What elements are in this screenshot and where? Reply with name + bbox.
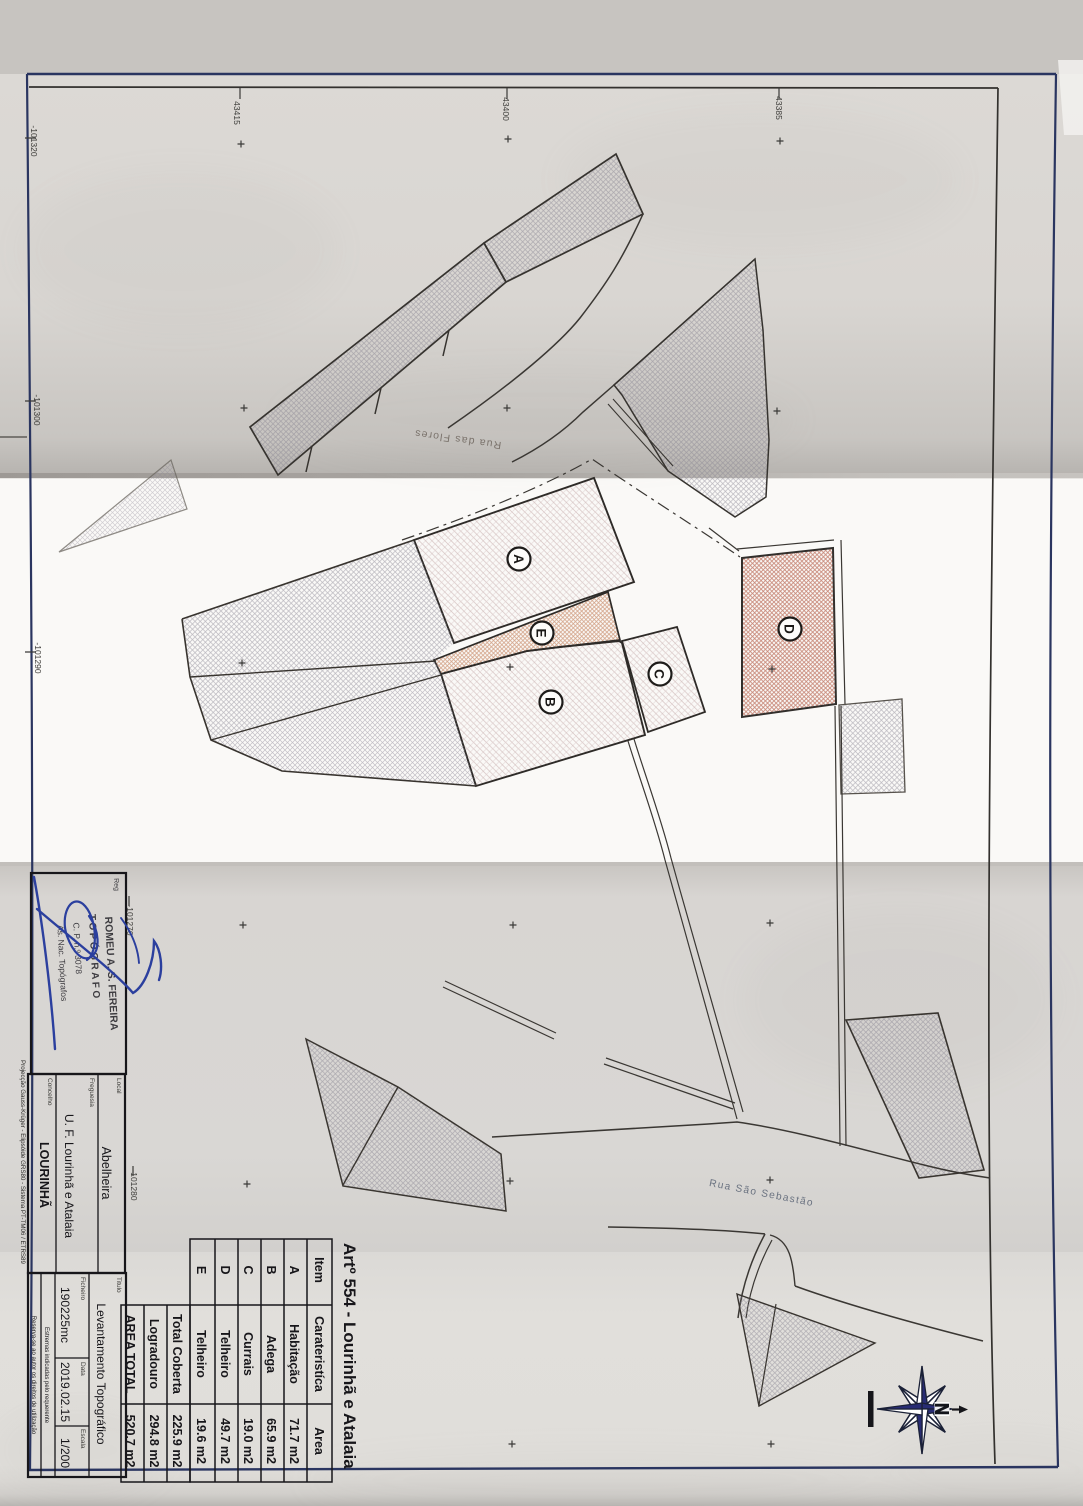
svg-text:C: C — [241, 1265, 255, 1274]
svg-text:-101290: -101290 — [33, 642, 43, 673]
svg-text:A: A — [511, 554, 526, 564]
svg-text:Total Coberta: Total Coberta — [170, 1314, 184, 1395]
svg-text:Item: Item — [312, 1257, 326, 1283]
svg-text:Currais: Currais — [241, 1332, 255, 1376]
svg-text:E: E — [534, 628, 549, 637]
svg-text:Concelho: Concelho — [46, 1078, 53, 1106]
svg-text:Logradouro: Logradouro — [147, 1319, 161, 1389]
svg-text:Area: Area — [312, 1427, 326, 1456]
svg-text:Reserva-se ao autor os direito: Reserva-se ao autor os direitos de utili… — [30, 1316, 36, 1435]
svg-text:B: B — [264, 1265, 278, 1274]
svg-text:Estremas indicadas pelo requer: Estremas indicadas pelo requerente — [43, 1327, 49, 1424]
svg-text:U. F. Lourinhã e Atalaia: U. F. Lourinhã e Atalaia — [62, 1114, 76, 1238]
svg-text:Abelheira: Abelheira — [99, 1147, 113, 1200]
svg-text:-101320: -101320 — [29, 125, 39, 156]
svg-text:-101300: -101300 — [32, 394, 42, 425]
svg-text:1/200: 1/200 — [58, 1438, 72, 1468]
svg-text:Artº 554 - Lourinhã e Atalaia: Artº 554 - Lourinhã e Atalaia — [340, 1243, 359, 1469]
svg-text:294.8 m2: 294.8 m2 — [147, 1415, 161, 1468]
svg-text:B: B — [543, 697, 558, 707]
svg-text:Local: Local — [115, 1078, 122, 1094]
svg-text:Telheiro: Telheiro — [218, 1330, 232, 1378]
svg-text:Escala: Escala — [79, 1429, 86, 1449]
svg-text:Telheiro: Telheiro — [194, 1330, 208, 1378]
svg-text:Projecção Gauss-Krüger - Elips: Projecção Gauss-Krüger - Elipsóide GRS80… — [19, 1060, 26, 1264]
svg-text:19.0 m2: 19.0 m2 — [241, 1418, 255, 1464]
svg-text:D: D — [782, 624, 797, 634]
svg-text:Ficheiro: Ficheiro — [79, 1277, 86, 1301]
svg-text:E: E — [194, 1266, 208, 1274]
svg-text:43400: 43400 — [501, 97, 511, 121]
svg-text:65.9 m2: 65.9 m2 — [264, 1418, 278, 1464]
svg-text:A: A — [287, 1265, 301, 1274]
svg-text:Titulo: Titulo — [115, 1277, 122, 1293]
svg-text:2019.02.15: 2019.02.15 — [58, 1362, 72, 1422]
svg-text:43415: 43415 — [232, 101, 242, 125]
svg-text:Carateristíca: Carateristíca — [312, 1316, 326, 1393]
svg-text:43385: 43385 — [774, 96, 784, 120]
svg-text:Habitação: Habitação — [287, 1324, 301, 1384]
svg-text:D: D — [218, 1265, 232, 1274]
svg-text:-101280: -101280 — [129, 1169, 139, 1200]
svg-text:49.7 m2: 49.7 m2 — [218, 1418, 232, 1464]
svg-text:19.6 m2: 19.6 m2 — [194, 1418, 208, 1464]
svg-text:Adega: Adega — [264, 1335, 278, 1374]
svg-text:Reg: Reg — [112, 878, 120, 891]
svg-text:Data: Data — [79, 1362, 86, 1376]
svg-text:C: C — [652, 669, 667, 679]
svg-text:225.9 m2: 225.9 m2 — [170, 1415, 184, 1468]
svg-text:LOURINHÃ: LOURINHÃ — [37, 1142, 52, 1208]
svg-text:Freguesia: Freguesia — [88, 1078, 95, 1107]
svg-text:71.7 m2: 71.7 m2 — [287, 1418, 301, 1464]
svg-text:190225mc: 190225mc — [58, 1287, 72, 1343]
svg-text:Levantamento Topográfico: Levantamento Topográfico — [94, 1303, 108, 1445]
